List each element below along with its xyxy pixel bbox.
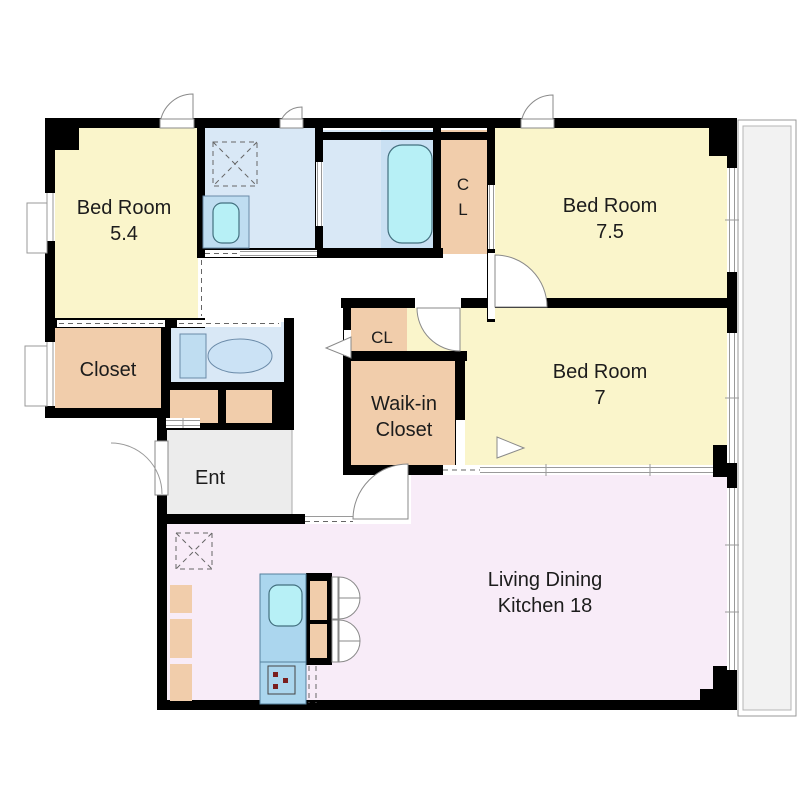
kitchen-storage <box>310 624 327 658</box>
sliding-door <box>177 320 281 327</box>
entrance-door <box>111 441 168 495</box>
bedroom-7-label: Bed Room <box>553 361 648 383</box>
balcony <box>738 120 796 716</box>
storage-shelf <box>170 664 192 701</box>
shoe-cabinet <box>226 390 272 423</box>
ldk-label-1: Living Dining <box>488 569 603 591</box>
window <box>166 418 200 428</box>
closet-upper-label-c: C <box>457 175 469 194</box>
sliding-door <box>57 320 165 327</box>
sliding-door <box>205 250 317 257</box>
bathroom-washspace-floor <box>319 130 385 254</box>
balcony-floor <box>743 126 791 710</box>
closet-small-door-arrow <box>326 337 351 358</box>
sliding-door <box>443 464 713 476</box>
bathroom-door <box>316 162 323 226</box>
window <box>25 342 55 406</box>
bedroom-5-4-label: Bed Room <box>77 197 172 219</box>
kitchen-sink <box>269 585 302 626</box>
closet-upper-label-l: L <box>458 200 467 219</box>
storage-shelf <box>170 585 192 613</box>
bathtub <box>388 145 432 243</box>
bedroom-7-size: 7 <box>594 387 605 409</box>
floor-plan: Bed Room 5.4 Bed Room 7.5 Bed Room 7 C L… <box>0 0 800 800</box>
closet-left-label: Closet <box>80 359 137 381</box>
bedroom-5-4-size: 5.4 <box>110 223 138 245</box>
entrance-label: Ent <box>195 467 225 489</box>
window <box>725 488 739 670</box>
walk-in-closet-label-2: Closet <box>376 419 433 441</box>
bedroom-7-5-door-gap <box>488 253 495 319</box>
vanity-sink <box>203 196 249 248</box>
closet-small-label: CL <box>371 328 393 347</box>
hinged-door <box>521 95 554 128</box>
walk-in-closet-door-gap <box>456 420 465 466</box>
floor-plan-drawing: Bed Room 5.4 Bed Room 7.5 Bed Room 7 C L… <box>0 0 800 800</box>
window <box>725 168 739 272</box>
hinged-door <box>160 94 194 128</box>
ldk-label-2: Kitchen 18 <box>498 595 593 617</box>
kitchen-storage <box>310 581 327 620</box>
bedroom-7-5-size: 7.5 <box>596 221 624 243</box>
sliding-door <box>198 258 205 318</box>
sliding-door <box>305 514 353 524</box>
walk-in-closet-label-1: Waik-in <box>371 393 437 415</box>
bedroom-7-5-label: Bed Room <box>563 195 658 217</box>
hinged-door <box>280 107 303 128</box>
storage-shelf <box>170 619 192 658</box>
entrance-floor <box>167 428 292 518</box>
closet-upper-door <box>488 185 495 249</box>
window <box>725 333 739 463</box>
